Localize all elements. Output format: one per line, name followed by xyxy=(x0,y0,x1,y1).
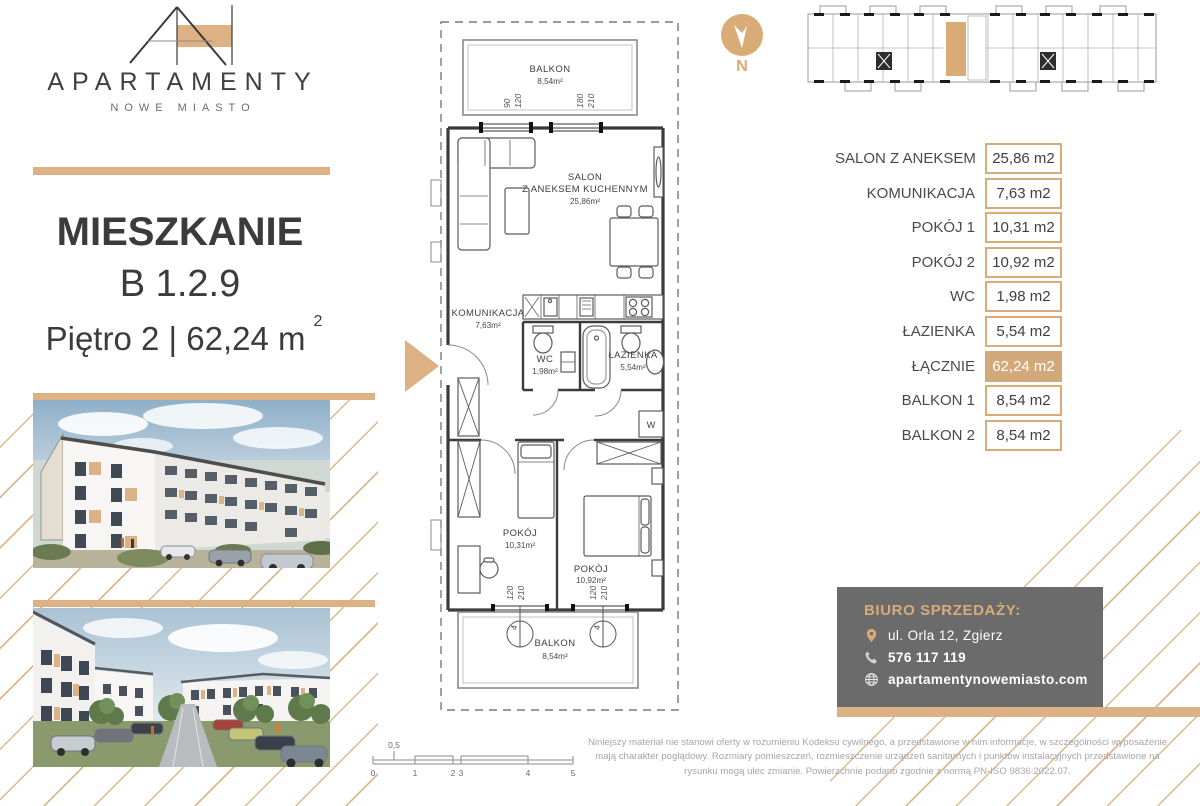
svg-text:210: 210 xyxy=(516,586,526,601)
svg-text:Z ANEKSEM KUCHENNYM: Z ANEKSEM KUCHENNYM xyxy=(522,184,648,195)
svg-text:WC: WC xyxy=(537,354,554,365)
svg-text:POKÓJ: POKÓJ xyxy=(574,564,608,575)
svg-text:180: 180 xyxy=(575,94,585,108)
floor-and-area: Piętro 2 | 62,24 m2 xyxy=(10,320,350,358)
phone-icon xyxy=(864,650,879,665)
brand-name: APARTAMENTY xyxy=(28,68,338,97)
square-sup: 2 xyxy=(313,313,322,330)
area-table: SALON Z ANEKSEM25,86 m2 KOMUNIKACJA7,63 … xyxy=(835,143,1062,454)
svg-text:25,86m²: 25,86m² xyxy=(570,197,600,206)
svg-text:BALKON: BALKON xyxy=(535,638,576,649)
svg-text:3: 3 xyxy=(459,768,464,778)
location-pin-icon xyxy=(864,628,879,643)
compass-north-label: N xyxy=(720,58,764,76)
apartment-number: B 1.2.9 xyxy=(10,263,350,306)
sales-office-box: BIURO SPRZEDAŻY: ul. Orla 12, Zgierz 576… xyxy=(837,587,1103,707)
svg-text:0: 0 xyxy=(371,768,376,778)
table-row: SALON Z ANEKSEM25,86 m2 xyxy=(835,143,1062,174)
svg-text:10,31m²: 10,31m² xyxy=(505,541,535,550)
svg-text:120: 120 xyxy=(505,586,515,600)
scale-bar: 0,5 0 1 2 3 4 5 xyxy=(368,736,580,782)
svg-text:SALON: SALON xyxy=(568,172,602,183)
svg-text:120: 120 xyxy=(513,94,523,108)
svg-text:POKÓJ: POKÓJ xyxy=(503,528,537,539)
balcony-top: BALKON 8,54m² xyxy=(463,40,637,115)
svg-text:8,54m²: 8,54m² xyxy=(537,77,563,86)
logo-monogram xyxy=(120,3,250,67)
photo-courtyard xyxy=(33,608,330,767)
photo-building-exterior-render xyxy=(33,400,330,568)
svg-text:1: 1 xyxy=(413,768,418,778)
svg-text:10,92m²: 10,92m² xyxy=(576,576,606,585)
table-row: BALKON 28,54 m2 xyxy=(835,420,1062,451)
sales-gold-bar xyxy=(837,707,1200,717)
photo-courtyard-render xyxy=(33,608,330,767)
table-row: POKÓJ 110,31 m2 xyxy=(835,212,1062,243)
sales-phone-line[interactable]: 576 117 119 xyxy=(864,650,1103,665)
highlighted-unit xyxy=(946,22,966,76)
sales-website[interactable]: apartamentynowemiasto.com xyxy=(888,672,1088,687)
svg-text:8,54m²: 8,54m² xyxy=(542,652,568,661)
apartment-title-block: MIESZKANIE B 1.2.9 Piętro 2 | 62,24 m2 xyxy=(10,212,350,358)
photo-top-bar-1 xyxy=(33,393,375,400)
svg-text:4: 4 xyxy=(526,768,531,778)
table-row-total: ŁĄCZNIE62,24 m2 xyxy=(835,351,1062,382)
svg-text:KOMUNIKACJA: KOMUNIKACJA xyxy=(451,308,524,319)
table-row: WC1,98 m2 xyxy=(835,281,1062,312)
site-plan-overview xyxy=(800,2,1170,99)
gold-divider xyxy=(33,167,330,175)
table-row: BALKON 18,54 m2 xyxy=(835,385,1062,416)
sales-address: ul. Orla 12, Zgierz xyxy=(888,628,1003,643)
svg-text:ŁAZIENKA: ŁAZIENKA xyxy=(608,350,657,361)
svg-text:210: 210 xyxy=(586,94,596,109)
page-title: MIESZKANIE xyxy=(10,212,350,252)
svg-text:BALKON: BALKON xyxy=(530,64,571,75)
svg-text:120: 120 xyxy=(588,586,598,600)
svg-text:90: 90 xyxy=(502,98,512,108)
balcony-bottom: 4 4 BALKON 8,54m² xyxy=(458,606,638,688)
svg-text:7,63m²: 7,63m² xyxy=(475,321,501,330)
svg-text:5: 5 xyxy=(571,768,576,778)
svg-text:1,98m²: 1,98m² xyxy=(532,367,558,376)
sales-website-line[interactable]: apartamentynowemiasto.com xyxy=(864,672,1103,687)
svg-text:210: 210 xyxy=(599,586,609,601)
floor-plan: BALKON 8,54m² xyxy=(425,0,710,740)
photo-top-bar-2 xyxy=(33,600,375,607)
table-row: ŁAZIENKA5,54 m2 xyxy=(835,316,1062,347)
svg-text:2: 2 xyxy=(451,768,456,778)
legal-disclaimer: Niniejszy materiał nie stanowi oferty w … xyxy=(585,736,1170,779)
brand-subtitle: NOWE MIASTO xyxy=(28,102,338,114)
table-row: POKÓJ 210,92 m2 xyxy=(835,247,1062,278)
svg-text:5,54m²: 5,54m² xyxy=(620,363,646,372)
svg-text:4: 4 xyxy=(509,625,519,630)
table-row: KOMUNIKACJA7,63 m2 xyxy=(835,178,1062,209)
globe-icon xyxy=(864,672,879,687)
compass: N xyxy=(720,14,764,76)
washer-label: W xyxy=(647,420,656,430)
svg-text:4: 4 xyxy=(592,625,602,630)
sales-address-line: ul. Orla 12, Zgierz xyxy=(864,628,1103,643)
sales-office-heading: BIURO SPRZEDAŻY: xyxy=(864,602,1103,619)
svg-text:0,5: 0,5 xyxy=(388,740,400,750)
sales-phone[interactable]: 576 117 119 xyxy=(888,650,966,665)
compass-icon xyxy=(721,14,763,56)
photo-building-exterior xyxy=(33,400,330,568)
